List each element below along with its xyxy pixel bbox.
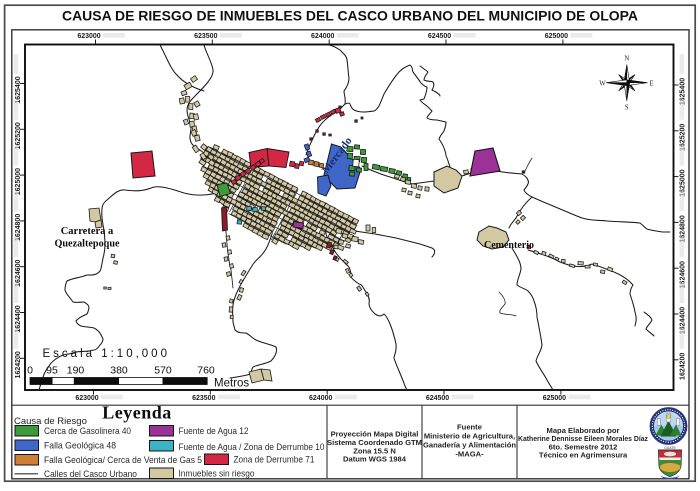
svg-text:Metros: Metros <box>214 378 249 390</box>
svg-text:1625000: 1625000 <box>15 168 22 195</box>
svg-text:95: 95 <box>46 365 58 377</box>
svg-text:-MAGA-: -MAGA- <box>455 450 484 459</box>
svg-text:Leyenda: Leyenda <box>102 403 172 423</box>
svg-text:Datum WGS 1984: Datum WGS 1984 <box>343 455 407 464</box>
svg-text:624000: 624000 <box>309 395 332 402</box>
svg-text:760: 760 <box>197 365 215 377</box>
svg-text:W: W <box>599 80 606 87</box>
svg-text:623000: 623000 <box>77 33 100 40</box>
svg-text:1624200: 1624200 <box>679 353 686 380</box>
svg-text:Fuente de Agua / Zona de Derru: Fuente de Agua / Zona de Derrumbe 10 <box>179 442 325 452</box>
svg-text:Falla Geológica 48: Falla Geológica 48 <box>44 441 116 451</box>
svg-text:570: 570 <box>154 365 172 377</box>
svg-text:GUATE: GUATE <box>664 446 676 450</box>
svg-text:0: 0 <box>27 365 33 377</box>
svg-text:1625200: 1625200 <box>15 122 22 149</box>
svg-text:Quezaltepoque: Quezaltepoque <box>54 239 120 250</box>
svg-text:Cerca de Gasolinera 40: Cerca de Gasolinera 40 <box>44 426 131 436</box>
svg-text:Ganadería y Alimentación: Ganadería y Alimentación <box>423 441 516 450</box>
svg-text:Carretera a: Carretera a <box>61 226 114 237</box>
svg-text:1625400: 1625400 <box>15 76 22 103</box>
svg-text:623500: 623500 <box>192 395 215 402</box>
svg-text:380: 380 <box>110 365 128 377</box>
svg-text:624000: 624000 <box>311 33 334 40</box>
svg-text:1624800: 1624800 <box>15 214 22 241</box>
svg-text:S: S <box>625 105 629 112</box>
svg-text:190: 190 <box>67 365 85 377</box>
svg-text:Fuente de Agua 12: Fuente de Agua 12 <box>179 426 249 436</box>
svg-text:623500: 623500 <box>194 33 217 40</box>
svg-text:625000: 625000 <box>543 395 566 402</box>
svg-text:CAUSA DE RIESGO DE INMUEBLES D: CAUSA DE RIESGO DE INMUEBLES DEL CASCO U… <box>62 9 638 25</box>
svg-text:1624200: 1624200 <box>15 351 22 378</box>
svg-text:1624400: 1624400 <box>15 305 22 332</box>
svg-text:Zona de Derrumbe 71: Zona de Derrumbe 71 <box>234 455 315 465</box>
svg-text:1624600: 1624600 <box>15 259 22 286</box>
svg-text:N: N <box>624 56 629 63</box>
svg-text:E: E <box>649 80 653 87</box>
svg-text:623000: 623000 <box>75 395 98 402</box>
svg-text:625000: 625000 <box>545 33 568 40</box>
svg-text:Escala 1:10,000: Escala 1:10,000 <box>43 348 170 360</box>
svg-text:Técnico en Agrimensura: Técnico en Agrimensura <box>539 451 628 460</box>
svg-text:624500: 624500 <box>428 33 451 40</box>
svg-text:Falla Geológica/ Cerca de Vent: Falla Geológica/ Cerca de Venta de Gas 5 <box>44 455 202 465</box>
svg-text:Fuente: Fuente <box>457 423 482 432</box>
svg-text:624500: 624500 <box>426 395 449 402</box>
svg-text:Ministerio de Agricultura,: Ministerio de Agricultura, <box>424 432 515 441</box>
svg-text:Calles del Casco Urbano: Calles del Casco Urbano <box>44 469 137 479</box>
svg-text:Inmuebles sin riesgo: Inmuebles sin riesgo <box>179 469 255 479</box>
svg-text:Cementerio: Cementerio <box>484 240 534 251</box>
